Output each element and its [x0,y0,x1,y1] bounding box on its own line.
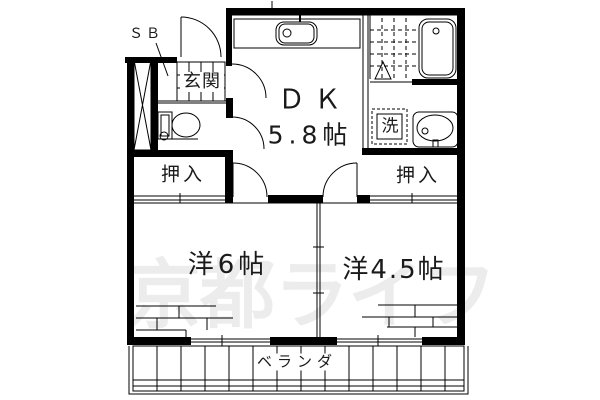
dk-room-right-door [323,163,357,197]
bathtub-icon [419,19,456,78]
dining-kitchen-size: 5.8帖 [268,123,353,148]
bath-folding-door-icon [375,62,391,79]
floor-plan: 京都ライフ [0,0,600,400]
room-right-label: 洋4.5帖 [342,257,445,283]
sink-drain-icon [283,29,291,37]
laundry-label: 洗 [382,119,399,136]
dining-kitchen-label: ＤＫ [278,87,350,114]
closet-left-label: 押入 [161,166,205,185]
bathroom [370,15,456,82]
window-sill-bricks-right [362,305,457,337]
closet-right-label: 押入 [396,167,440,186]
shoe-box-label: ＳＢ [129,27,163,41]
dk-room-left-door [233,163,267,197]
room-left-label: 洋6帖 [188,252,269,278]
floor-plan-linework [0,0,600,400]
entrance-door [181,17,221,57]
hall-dk-door [232,64,266,98]
toilet-door [232,117,264,149]
balcony-label: ベランダ [254,354,340,371]
shoe-box-cabinet [134,60,151,150]
kitchen-counter [234,15,360,48]
toilet-icon [158,112,200,140]
vanity-sink-icon [413,112,458,147]
window-sill-bricks-left [136,306,233,337]
entrance-label: 玄関 [180,72,224,92]
